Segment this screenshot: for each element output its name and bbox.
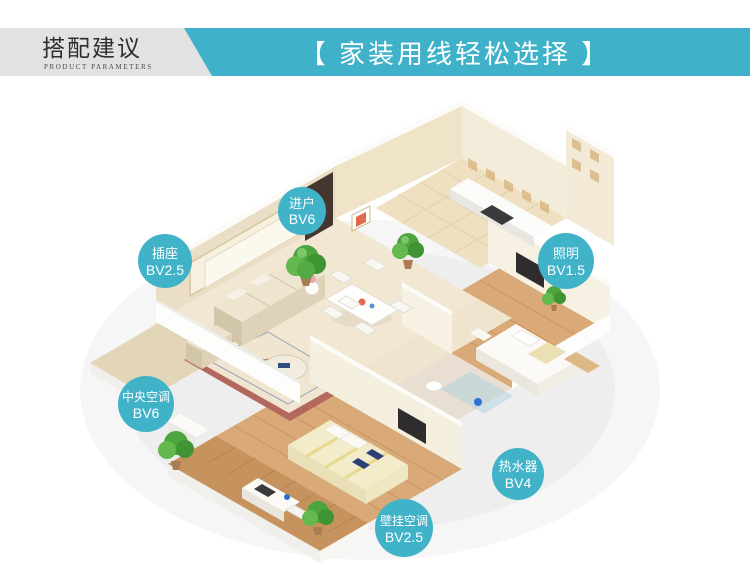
svg-text:插座: 插座 — [152, 246, 178, 261]
bubble-lighting: 照明 BV1.5 — [538, 233, 594, 289]
bubble-socket: 插座 BV2.5 — [138, 234, 192, 288]
svg-text:BV6: BV6 — [289, 211, 316, 227]
svg-text:BV2.5: BV2.5 — [385, 529, 423, 545]
toilet — [426, 381, 442, 391]
bubble-water-heater: 热水器 BV4 — [492, 448, 544, 500]
bubble-wall-ac: 壁挂空调 BV2.5 — [375, 499, 433, 557]
svg-text:照明: 照明 — [553, 246, 579, 261]
bubble-central-ac: 中央空调 BV6 — [118, 376, 174, 432]
svg-text:BV4: BV4 — [505, 475, 532, 491]
svg-text:BV6: BV6 — [133, 405, 160, 421]
product-detail-page: 【 家装用线轻松选择 】 搭配建议 PRODUCT PARAMETERS — [0, 0, 750, 584]
svg-text:中央空调: 中央空调 — [122, 389, 170, 404]
svg-text:BV1.5: BV1.5 — [547, 262, 585, 278]
water-heater-pipe — [474, 398, 482, 406]
svg-text:热水器: 热水器 — [498, 459, 537, 474]
svg-text:BV2.5: BV2.5 — [146, 262, 184, 278]
svg-text:壁挂空调: 壁挂空调 — [380, 513, 428, 528]
bubble-entry: 进户 BV6 — [278, 187, 326, 235]
floor-plan-image: 进户 BV6 插座 BV2.5 照明 BV1.5 中央空调 BV6 热水器 — [0, 0, 750, 584]
svg-text:进户: 进户 — [289, 196, 315, 211]
